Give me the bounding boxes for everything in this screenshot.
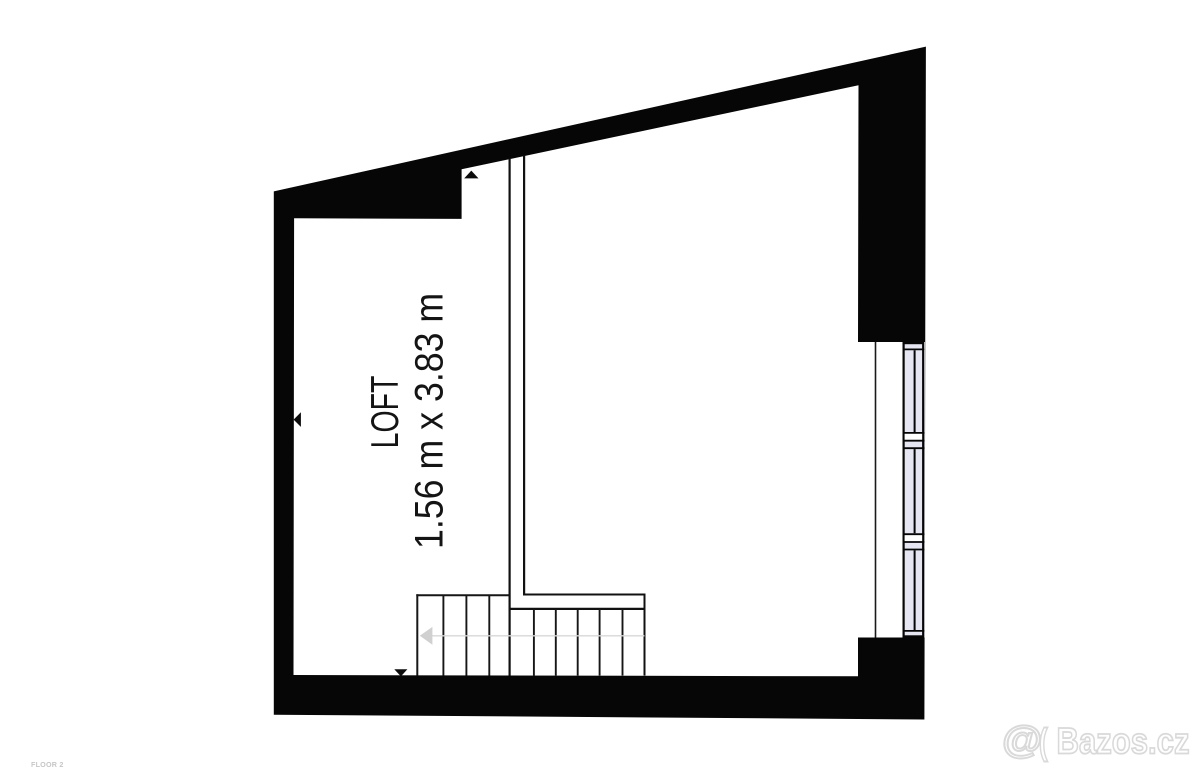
svg-text:@: @ [1002,719,1042,761]
svg-text:(: ( [1039,722,1048,762]
svg-text:LOFT: LOFT [364,376,407,449]
svg-text:1.56 m x 3.83 m: 1.56 m x 3.83 m [407,293,451,549]
svg-text:Bazos.cz: Bazos.cz [1057,721,1190,762]
svg-text:FLOOR 2: FLOOR 2 [31,760,64,769]
